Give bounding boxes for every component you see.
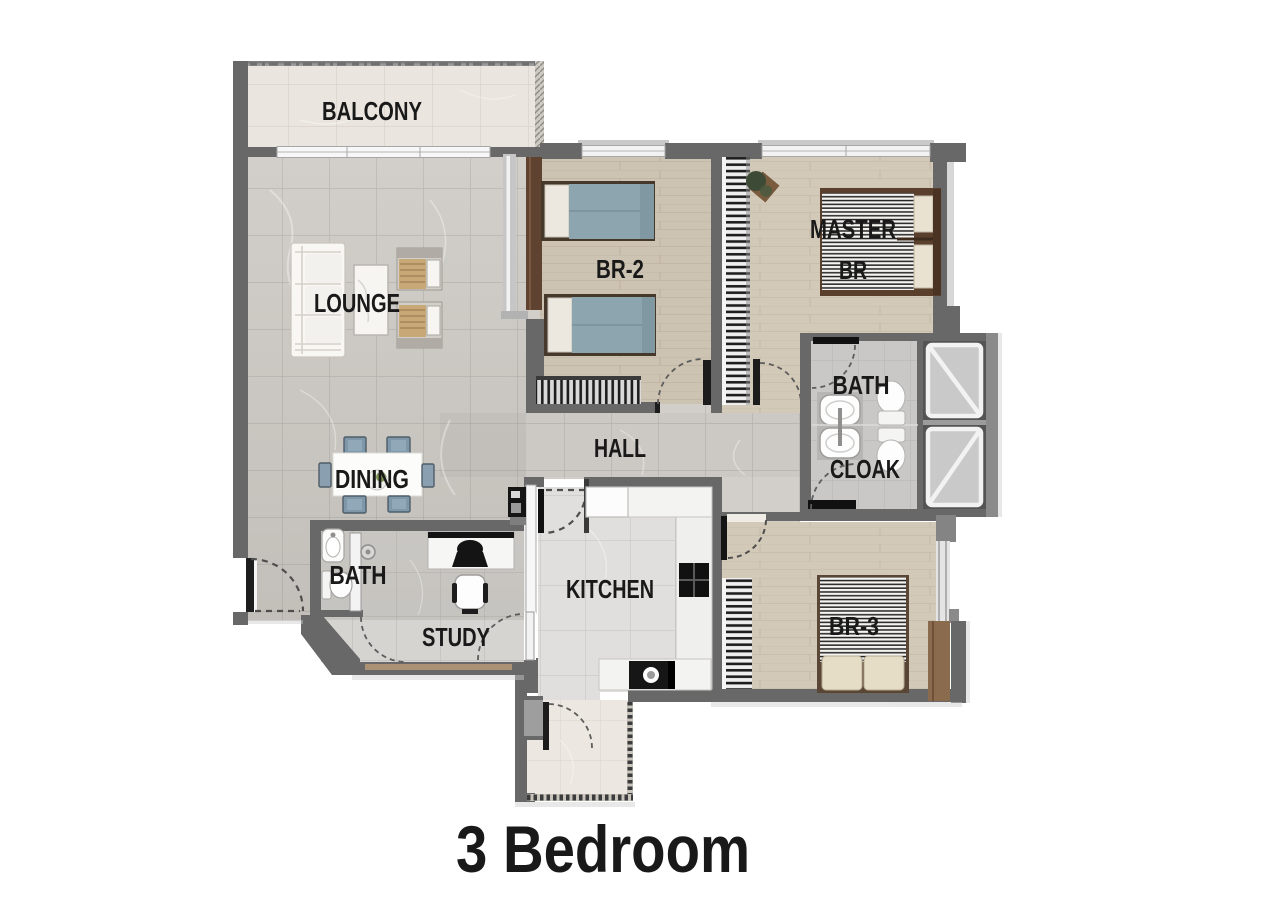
svg-text:BR-3: BR-3 [829,611,879,641]
svg-text:BATH: BATH [833,370,890,400]
svg-text:LOUNGE: LOUNGE [314,288,400,318]
svg-text:BR: BR [839,255,867,285]
svg-text:MASTER: MASTER [810,214,896,244]
svg-text:CLOAK: CLOAK [830,454,900,484]
svg-text:BATH: BATH [330,560,387,590]
svg-text:BR-2: BR-2 [596,254,644,284]
svg-text:KITCHEN: KITCHEN [566,574,654,604]
svg-text:STUDY: STUDY [422,622,490,652]
svg-text:DINING: DINING [335,464,409,494]
svg-text:BALCONY: BALCONY [322,96,422,126]
svg-text:HALL: HALL [594,433,646,463]
svg-text:3 Bedroom: 3 Bedroom [456,812,750,886]
